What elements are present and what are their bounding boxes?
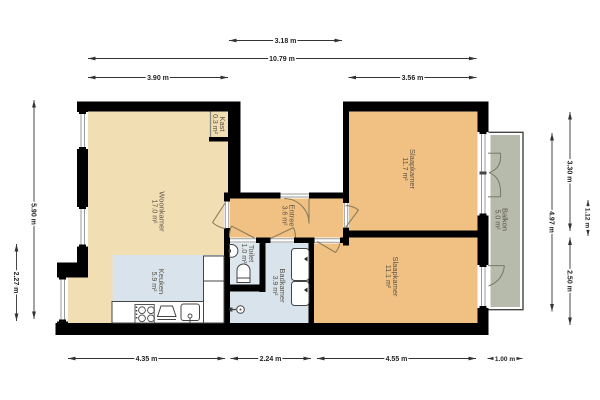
- svg-text:10.79 m: 10.79 m: [269, 56, 295, 63]
- svg-text:Slaapkamer: Slaapkamer: [408, 149, 417, 190]
- svg-text:2.24 m: 2.24 m: [260, 356, 282, 363]
- svg-text:11.1 m²: 11.1 m²: [384, 265, 391, 289]
- svg-text:4.55 m: 4.55 m: [386, 356, 408, 363]
- svg-text:0.3 m²: 0.3 m²: [211, 114, 218, 135]
- svg-text:11.7 m²: 11.7 m²: [401, 157, 408, 181]
- svg-text:1.0 m²: 1.0 m²: [240, 244, 247, 265]
- svg-text:4.35 m: 4.35 m: [136, 356, 158, 363]
- svg-text:Balkon: Balkon: [501, 208, 510, 231]
- svg-text:5.0 m²: 5.0 m²: [494, 210, 501, 231]
- svg-text:Toilet: Toilet: [247, 245, 256, 263]
- svg-text:Kast: Kast: [218, 116, 227, 132]
- svg-text:3.56 m: 3.56 m: [402, 75, 424, 82]
- svg-text:Entree: Entree: [288, 204, 297, 226]
- svg-text:5.90 m: 5.90 m: [29, 203, 36, 225]
- svg-text:3.6 m²: 3.6 m²: [281, 206, 288, 227]
- svg-text:Keuken: Keuken: [157, 269, 166, 294]
- svg-text:17.0 m²: 17.0 m²: [151, 200, 158, 224]
- svg-text:Woonkamer: Woonkamer: [158, 191, 167, 232]
- svg-text:4.97 m: 4.97 m: [547, 211, 554, 233]
- svg-text:2.27 m: 2.27 m: [12, 272, 19, 294]
- svg-text:Badkamer: Badkamer: [278, 268, 287, 303]
- svg-text:3.30 m: 3.30 m: [565, 161, 572, 183]
- svg-text:3.90 m: 3.90 m: [147, 75, 169, 82]
- svg-text:Slaapkamer: Slaapkamer: [391, 256, 400, 297]
- svg-text:1.12 m: 1.12 m: [584, 208, 591, 228]
- svg-text:1.00 m: 1.00 m: [495, 356, 515, 363]
- svg-text:3.18 m: 3.18 m: [275, 38, 297, 45]
- svg-text:5.9 m²: 5.9 m²: [150, 272, 157, 293]
- svg-text:2.50 m: 2.50 m: [565, 270, 572, 292]
- svg-text:3.9 m²: 3.9 m²: [271, 276, 278, 297]
